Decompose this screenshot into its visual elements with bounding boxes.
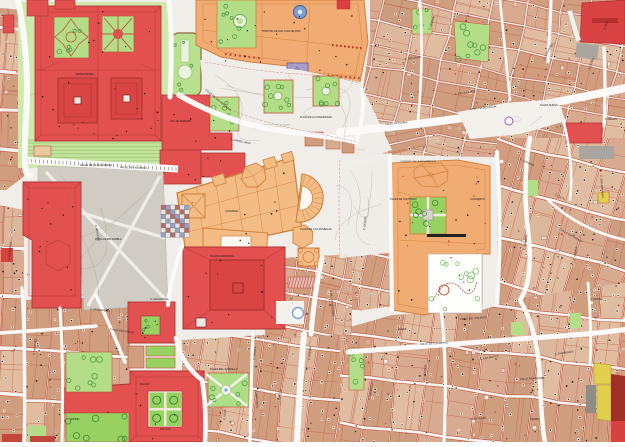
svg-text:PALACIO: PALACIO <box>140 383 150 386</box>
svg-text:CONVENTO: CONVENTO <box>470 197 485 201</box>
svg-text:PLAZA DE SANTIAGO: PLAZA DE SANTIAGO <box>390 197 417 201</box>
svg-text:PLAZA DEL CAMPILLO: PLAZA DEL CAMPILLO <box>210 367 238 371</box>
svg-text:CAMPO: CAMPO <box>530 417 540 421</box>
svg-text:JARDIN: JARDIN <box>70 417 79 421</box>
svg-text:C. SANTA: C. SANTA <box>590 297 602 301</box>
svg-text:CALLE DE LA ALHONDIGA: CALLE DE LA ALHONDIGA <box>80 163 112 167</box>
svg-text:CONVENTO DE LA ENCARNACION: CONVENTO DE LA ENCARNACION <box>400 160 436 163</box>
svg-text:FAC. DE DERECHO: FAC. DE DERECHO <box>170 120 191 123</box>
svg-text:PLAZA NUEVA: PLAZA NUEVA <box>540 103 558 107</box>
svg-text:PALACIO ARZOBISPAL: PALACIO ARZOBISPAL <box>210 255 235 258</box>
svg-text:C. REJAS: C. REJAS <box>605 117 617 121</box>
svg-text:HOSPITAL DE SAN JUAN DE DIOS: HOSPITAL DE SAN JUAN DE DIOS <box>262 30 301 33</box>
svg-text:PALACIO: PALACIO <box>160 427 171 431</box>
svg-text:C. ALHONDIGA: C. ALHONDIGA <box>150 297 169 301</box>
svg-text:PLAZA: PLAZA <box>398 327 406 331</box>
svg-text:PLAZA DE LAS PASIEGAS: PLAZA DE LAS PASIEGAS <box>300 227 332 231</box>
svg-text:PLAZA DE LA UNIVERSIDAD: PLAZA DE LA UNIVERSIDAD <box>300 116 332 119</box>
svg-text:MONASTERIO: MONASTERIO <box>76 72 93 76</box>
svg-text:CATEDRAL: CATEDRAL <box>225 209 239 213</box>
